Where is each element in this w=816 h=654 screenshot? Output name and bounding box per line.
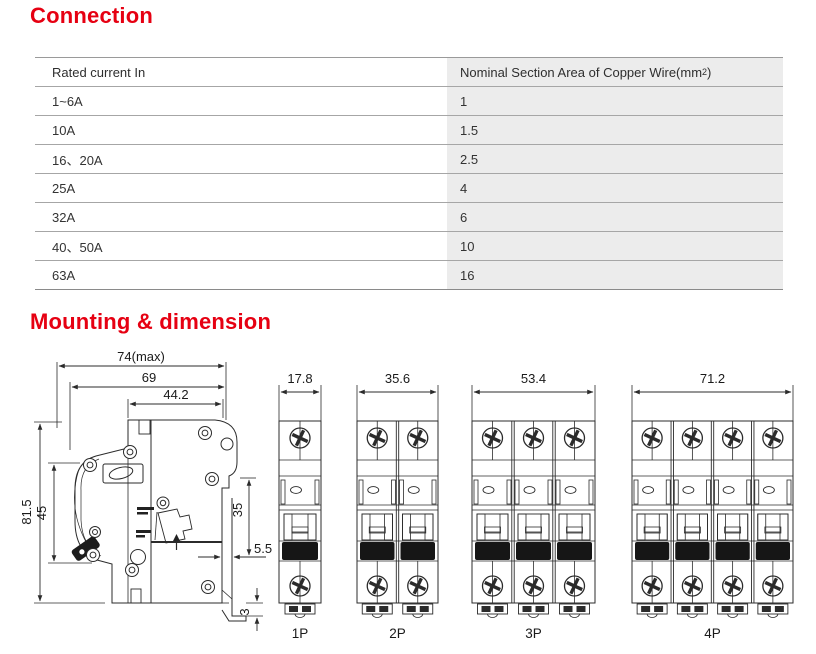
label-band bbox=[360, 542, 395, 560]
front-view-2p: 35.62P bbox=[357, 371, 438, 641]
column-header-section-area: Nominal Section Area of Copper Wire(mm2 … bbox=[447, 58, 783, 86]
label-band bbox=[635, 542, 669, 560]
indicator-window bbox=[483, 487, 494, 494]
dimension-label: 35.6 bbox=[385, 371, 410, 386]
indicator-window bbox=[763, 487, 774, 494]
indicator-window bbox=[643, 487, 654, 494]
table-row: 10A 1.5 bbox=[35, 116, 783, 145]
indicator-window bbox=[565, 487, 576, 494]
mounting-instruction-icon bbox=[136, 507, 192, 550]
rated-current-cell: 40、50A bbox=[35, 232, 447, 260]
indicator-window bbox=[683, 487, 694, 494]
screw-icon bbox=[221, 438, 233, 450]
section-area-cell: 2.5 bbox=[447, 145, 783, 173]
section-area-cell: 10 bbox=[447, 232, 783, 260]
dimension-drawings: 74(max) 69 44.2 81.5 45 35 5.5 3 17.81P3… bbox=[0, 345, 816, 654]
connection-section-title: Connection bbox=[30, 3, 153, 29]
dimension-label: 45 bbox=[34, 506, 49, 520]
front-view-1p: 17.81P bbox=[279, 371, 321, 641]
label-band bbox=[557, 542, 592, 560]
screw-icon bbox=[202, 581, 215, 594]
screw-icon bbox=[90, 527, 101, 538]
dimension-label: 5.5 bbox=[254, 541, 272, 556]
mounting-section-title: Mounting & dimension bbox=[30, 309, 271, 335]
section-area-cell: 16 bbox=[447, 261, 783, 289]
side-view-drawing: 74(max) 69 44.2 81.5 45 35 5.5 3 bbox=[19, 349, 272, 631]
front-views-group: 17.81P35.62P53.43P71.24P bbox=[279, 371, 793, 641]
dimension-label: 35 bbox=[230, 503, 245, 517]
indicator-window bbox=[291, 487, 302, 494]
rated-current-cell: 32A bbox=[35, 203, 447, 231]
screw-icon bbox=[157, 497, 169, 509]
table-row: 16、20A 2.5 bbox=[35, 145, 783, 174]
label-band bbox=[675, 542, 709, 560]
screw-icon bbox=[199, 427, 212, 440]
indicator-window bbox=[524, 487, 535, 494]
label-band bbox=[716, 542, 750, 560]
rated-current-cell: 25A bbox=[35, 174, 447, 202]
rated-current-cell: 63A bbox=[35, 261, 447, 289]
screw-icon bbox=[87, 549, 100, 562]
dimension-label: 81.5 bbox=[19, 499, 34, 524]
screw-icon bbox=[131, 550, 146, 565]
label-band bbox=[756, 542, 790, 560]
side-view-screws bbox=[84, 427, 234, 594]
rated-current-cell: 16、20A bbox=[35, 145, 447, 173]
dimension-label: 17.8 bbox=[287, 371, 312, 386]
front-view-4p: 71.24P bbox=[632, 371, 793, 641]
toggle-lever bbox=[108, 465, 134, 481]
screw-icon bbox=[84, 459, 97, 472]
rated-current-cell: 10A bbox=[35, 116, 447, 144]
label-band bbox=[475, 542, 510, 560]
label-band bbox=[282, 542, 318, 560]
breaker-side-outline bbox=[75, 420, 237, 603]
dimension-label: 3 bbox=[237, 608, 252, 615]
section-area-cell: 1.5 bbox=[447, 116, 783, 144]
table-row: 63A 16 bbox=[35, 261, 783, 289]
screw-icon bbox=[126, 564, 139, 577]
dimension-label: 53.4 bbox=[521, 371, 546, 386]
label-band bbox=[401, 542, 436, 560]
indicator-window bbox=[408, 487, 419, 494]
screw-icon bbox=[124, 446, 137, 459]
dimension-label: 71.2 bbox=[700, 371, 725, 386]
indicator-window bbox=[368, 487, 379, 494]
front-view-3p: 53.43P bbox=[472, 371, 595, 641]
pole-label: 4P bbox=[704, 626, 721, 641]
table-row: 40、50A 10 bbox=[35, 232, 783, 261]
table-row: 1~6A 1 bbox=[35, 87, 783, 116]
indicator-window bbox=[723, 487, 734, 494]
section-area-cell: 1 bbox=[447, 87, 783, 115]
dimension-label: 74(max) bbox=[117, 349, 165, 364]
table-header-row: Rated current In Nominal Section Area of… bbox=[35, 58, 783, 87]
label-band bbox=[516, 542, 551, 560]
copper-wire-table: Rated current In Nominal Section Area of… bbox=[35, 57, 783, 290]
pole-label: 1P bbox=[292, 626, 309, 641]
section-area-cell: 4 bbox=[447, 174, 783, 202]
rated-current-cell: 1~6A bbox=[35, 87, 447, 115]
column-header-rated-current: Rated current In bbox=[35, 58, 447, 86]
pole-label: 2P bbox=[389, 626, 406, 641]
table-row: 32A 6 bbox=[35, 203, 783, 232]
section-area-cell: 6 bbox=[447, 203, 783, 231]
table-row: 25A 4 bbox=[35, 174, 783, 203]
screw-icon bbox=[206, 473, 219, 486]
pole-label: 3P bbox=[525, 626, 542, 641]
dimension-label: 44.2 bbox=[163, 387, 188, 402]
dimension-label: 69 bbox=[142, 370, 156, 385]
